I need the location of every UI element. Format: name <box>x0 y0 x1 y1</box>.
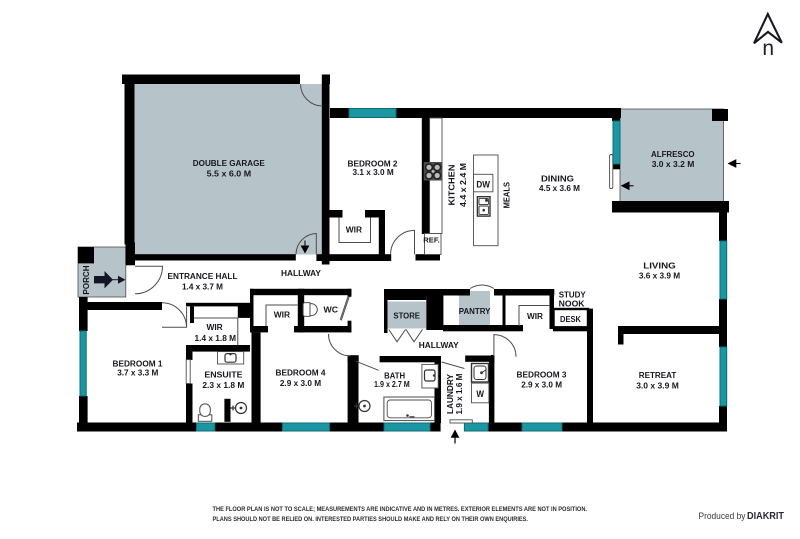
svg-text:DOUBLE GARAGE: DOUBLE GARAGE <box>193 158 265 168</box>
svg-text:ALFRESCO: ALFRESCO <box>651 149 695 159</box>
svg-text:PORCH: PORCH <box>81 265 91 294</box>
svg-text:3.1 x 3.0 M: 3.1 x 3.0 M <box>352 167 393 177</box>
svg-text:DIAKRIT: DIAKRIT <box>747 511 784 522</box>
svg-text:3.0 x 3.9 M: 3.0 x 3.9 M <box>636 380 679 390</box>
svg-text:1.9 x 1.6 M: 1.9 x 1.6 M <box>454 374 464 415</box>
svg-text:4.5 x 3.6 M: 4.5 x 3.6 M <box>539 183 580 193</box>
svg-text:PANTRY: PANTRY <box>459 306 491 316</box>
svg-text:n: n <box>762 37 774 60</box>
svg-text:HALLWAY: HALLWAY <box>419 340 459 350</box>
svg-text:2.9 x 3.0 M: 2.9 x 3.0 M <box>280 378 321 388</box>
svg-text:WIR: WIR <box>346 224 363 234</box>
svg-text:5.5 x 6.0 M: 5.5 x 6.0 M <box>207 169 252 179</box>
svg-text:3.7 x 3.3 M: 3.7 x 3.3 M <box>117 367 158 377</box>
svg-text:NOOK: NOOK <box>559 298 586 308</box>
svg-text:REF.: REF. <box>423 236 440 245</box>
svg-text:WIR: WIR <box>274 309 291 319</box>
svg-text:ENSUITE: ENSUITE <box>204 370 242 380</box>
svg-text:DW: DW <box>476 179 490 189</box>
svg-text:3.0 x 3.2 M: 3.0 x 3.2 M <box>652 159 695 169</box>
svg-text:DINING: DINING <box>541 174 574 184</box>
svg-text:ENTRANCE HALL: ENTRANCE HALL <box>168 271 238 281</box>
svg-text:PLANS SHOULD NOT BE RELIED ON.: PLANS SHOULD NOT BE RELIED ON. INTERESTE… <box>213 516 529 523</box>
svg-text:1.4 x 3.7 M: 1.4 x 3.7 M <box>182 282 223 292</box>
svg-text:STORE: STORE <box>393 311 420 321</box>
svg-text:Produced by: Produced by <box>699 511 746 521</box>
svg-text:LIVING: LIVING <box>643 260 676 270</box>
svg-text:THE FLOOR PLAN IS NOT TO SCALE: THE FLOOR PLAN IS NOT TO SCALE; MEASUREM… <box>213 506 588 513</box>
svg-text:MEALS: MEALS <box>502 182 512 209</box>
svg-text:BEDROOM 4: BEDROOM 4 <box>276 367 326 377</box>
svg-text:2.9 x 3.0 M: 2.9 x 3.0 M <box>521 380 562 390</box>
svg-text:WC: WC <box>324 304 339 314</box>
svg-text:BEDROOM 3: BEDROOM 3 <box>517 370 567 380</box>
svg-text:2.3 x 1.8 M: 2.3 x 1.8 M <box>202 380 244 390</box>
svg-text:W: W <box>476 389 484 399</box>
svg-text:1.9 x 2.7 M: 1.9 x 2.7 M <box>374 379 410 389</box>
svg-text:3.6 x 3.9 M: 3.6 x 3.9 M <box>639 271 680 281</box>
svg-text:RETREAT: RETREAT <box>639 370 677 380</box>
svg-text:WIR: WIR <box>527 311 544 321</box>
svg-text:4.4 x 2.4 M: 4.4 x 2.4 M <box>458 163 468 207</box>
svg-text:HALLWAY: HALLWAY <box>281 268 321 278</box>
svg-text:KITCHEN: KITCHEN <box>447 165 457 206</box>
svg-text:WIR: WIR <box>206 322 223 332</box>
svg-text:DESK: DESK <box>560 314 582 324</box>
svg-text:1.4 x 1.8 M: 1.4 x 1.8 M <box>195 333 237 343</box>
